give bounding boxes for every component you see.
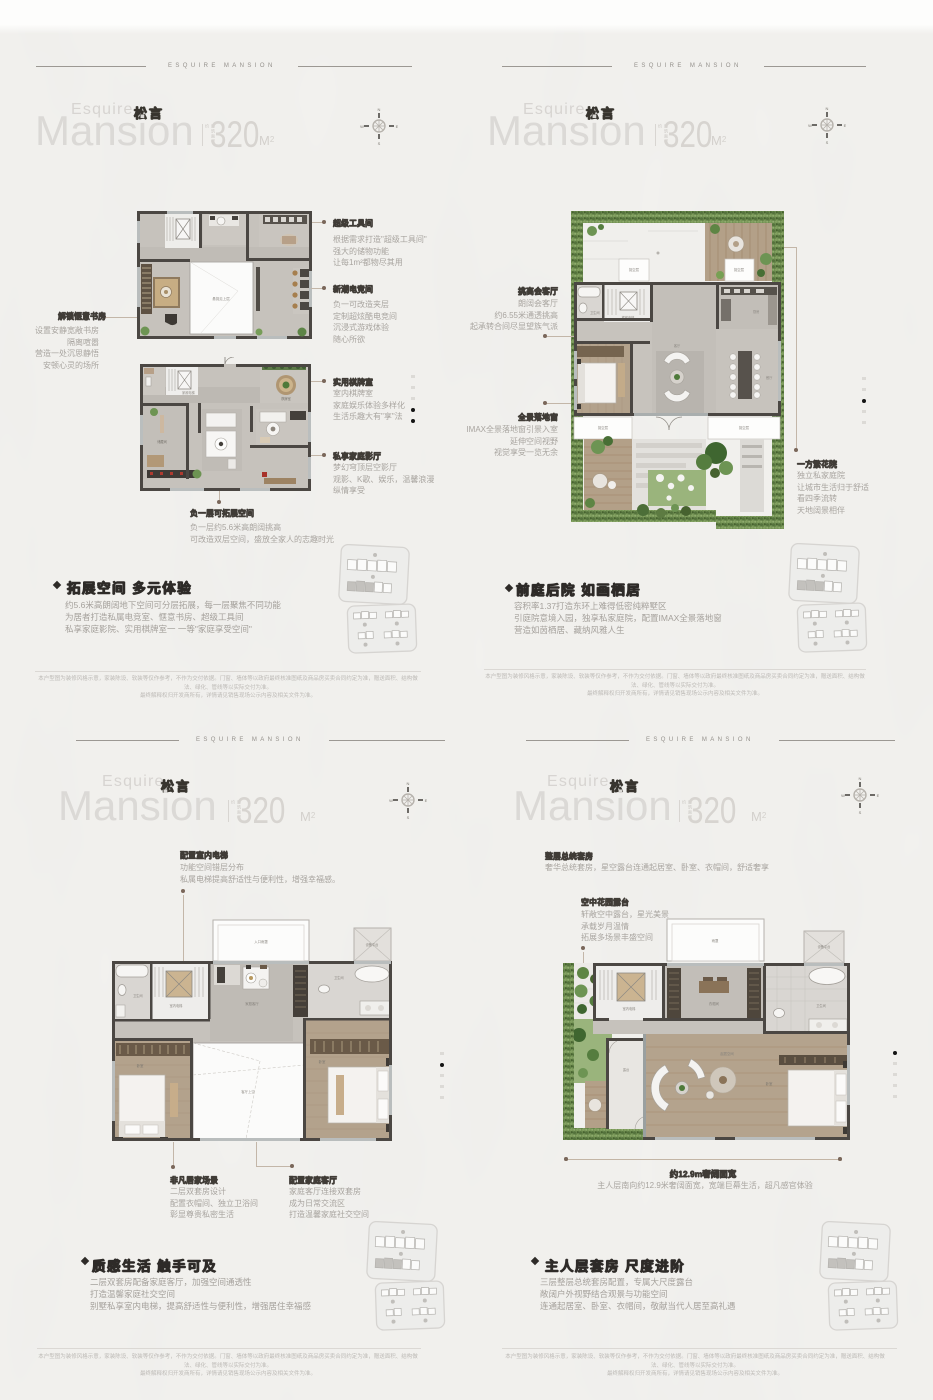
- svg-text:S: S: [826, 140, 829, 145]
- svg-text:E: E: [425, 798, 427, 803]
- svg-text:客厅上空: 客厅上空: [241, 1089, 255, 1094]
- svg-text:E: E: [844, 123, 846, 128]
- svg-text:卫生间: 卫生间: [816, 1003, 826, 1008]
- svg-text:W: W: [808, 123, 812, 128]
- svg-text:卧室: 卧室: [137, 1063, 144, 1068]
- svg-text:挑空层: 挑空层: [739, 425, 750, 430]
- svg-text:W: W: [360, 124, 364, 129]
- svg-text:卧室: 卧室: [766, 1081, 773, 1086]
- svg-text:W: W: [389, 798, 393, 803]
- svg-text:设备平台: 设备平台: [366, 942, 379, 947]
- svg-text:N: N: [378, 107, 381, 112]
- svg-text:卫生间: 卫生间: [133, 993, 143, 998]
- svg-text:N: N: [826, 106, 829, 111]
- svg-text:家政电梯: 家政电梯: [182, 390, 196, 395]
- svg-text:S: S: [859, 810, 862, 815]
- svg-text:E: E: [396, 124, 398, 129]
- svg-text:S: S: [407, 815, 410, 820]
- svg-text:设备平台: 设备平台: [818, 944, 831, 949]
- svg-text:储藏间: 储藏间: [157, 439, 167, 444]
- svg-text:卫生间: 卫生间: [590, 310, 600, 315]
- svg-text:雨罩: 雨罩: [712, 938, 719, 943]
- svg-text:露台: 露台: [623, 1067, 629, 1072]
- svg-text:起居空间: 起居空间: [720, 1051, 734, 1056]
- svg-text:衣帽间: 衣帽间: [709, 1001, 720, 1006]
- svg-text:挑空层: 挑空层: [598, 425, 609, 430]
- svg-text:挑空层: 挑空层: [629, 267, 640, 272]
- svg-text:N: N: [859, 776, 862, 781]
- svg-text:室内电梯: 室内电梯: [170, 1003, 184, 1008]
- svg-text:客厅: 客厅: [674, 343, 681, 348]
- svg-text:餐厅: 餐厅: [766, 375, 773, 380]
- svg-text:悬挑见上层: 悬挑见上层: [212, 296, 230, 301]
- svg-text:厨房: 厨房: [753, 309, 759, 314]
- svg-text:家庭客厅: 家庭客厅: [245, 1001, 259, 1006]
- svg-text:挑空层: 挑空层: [734, 267, 745, 272]
- svg-text:卧室: 卧室: [319, 1059, 326, 1064]
- svg-text:卫生间: 卫生间: [334, 975, 344, 980]
- svg-text:S: S: [378, 141, 381, 146]
- svg-text:E: E: [877, 793, 879, 798]
- svg-text:棋牌室: 棋牌室: [281, 396, 291, 401]
- svg-text:入口雨罩: 入口雨罩: [254, 939, 268, 944]
- svg-text:W: W: [841, 793, 845, 798]
- svg-text:室内电梯: 室内电梯: [623, 1006, 637, 1011]
- svg-text:N: N: [407, 781, 410, 786]
